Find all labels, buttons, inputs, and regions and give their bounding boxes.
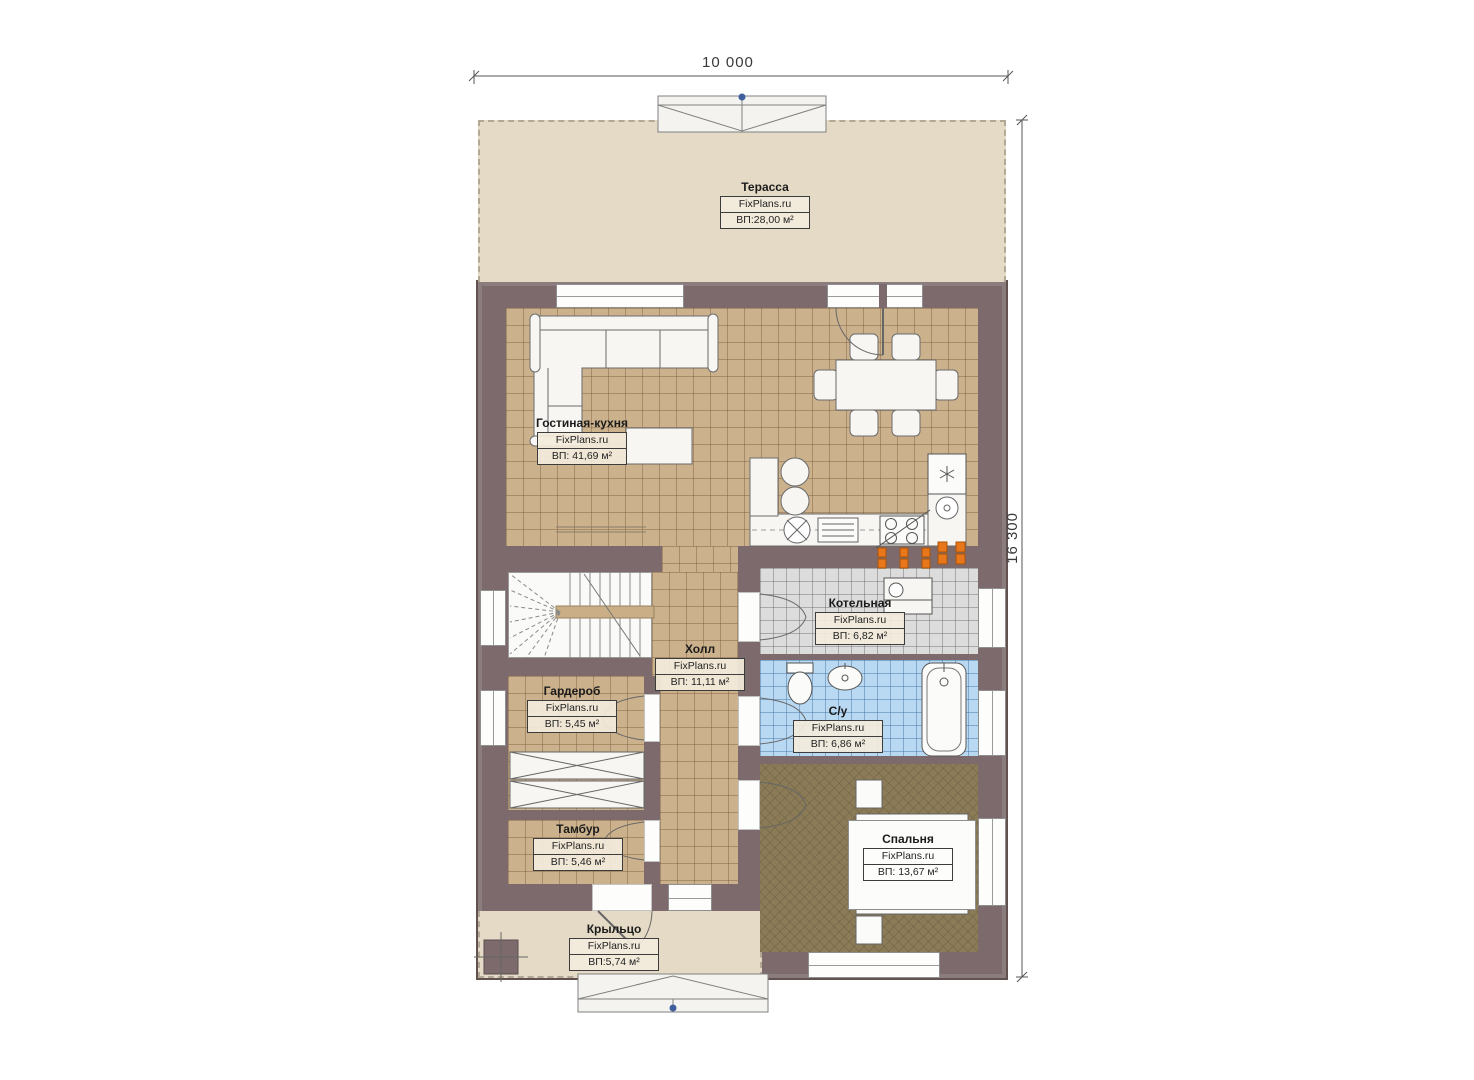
- room-name: Котельная: [829, 596, 892, 610]
- room-label-porch: Крыльцо FixPlans.ru ВП:5,74 м²: [562, 922, 666, 971]
- roof-window-bottom-icon: [578, 974, 768, 1012]
- room-label-bathroom: С/у FixPlans.ru ВП: 6,86 м²: [790, 704, 886, 753]
- brand-watermark: FixPlans.ru: [528, 701, 616, 717]
- bathroom-door-opening: [738, 696, 760, 746]
- room-info-box: FixPlans.ru ВП: 5,45 м²: [527, 700, 617, 733]
- window-left-wardrobe: [480, 690, 506, 746]
- room-area: ВП: 13,67 м²: [864, 865, 952, 880]
- brand-watermark: FixPlans.ru: [538, 433, 626, 449]
- room-area: ВП:5,74 м²: [570, 955, 658, 970]
- room-info-box: FixPlans.ru ВП: 13,67 м²: [863, 848, 953, 881]
- room-name: Терасса: [741, 180, 789, 194]
- brand-watermark: FixPlans.ru: [864, 849, 952, 865]
- window-left-stairs: [480, 590, 506, 646]
- room-info-box: FixPlans.ru ВП:5,74 м²: [569, 938, 659, 971]
- room-info-box: FixPlans.ru ВП:28,00 м²: [720, 196, 810, 229]
- room-label-vestibule: Тамбур FixPlans.ru ВП: 5,46 м²: [528, 822, 628, 871]
- room-area: ВП: 6,82 м²: [816, 629, 904, 644]
- dimension-height-label: 16 300: [1004, 512, 1021, 564]
- window-right-bedroom: [978, 818, 1006, 906]
- boiler-door-opening: [738, 592, 760, 642]
- front-door-opening: [592, 884, 652, 911]
- brand-watermark: FixPlans.ru: [816, 613, 904, 629]
- floor-hall-lower: [660, 676, 738, 884]
- window-right-bathroom: [978, 690, 1006, 756]
- room-area: ВП: 6,86 м²: [794, 737, 882, 752]
- room-info-box: FixPlans.ru ВП: 6,82 м²: [815, 612, 905, 645]
- front-window: [668, 884, 712, 911]
- room-name: Тамбур: [556, 822, 600, 836]
- room-name: Спальня: [882, 832, 934, 846]
- vestibule-door-opening: [644, 820, 660, 862]
- room-name: Крыльцо: [587, 922, 642, 936]
- room-name: Гардероб: [544, 684, 601, 698]
- dimension-top-line: [469, 70, 1013, 84]
- brand-watermark: FixPlans.ru: [794, 721, 882, 737]
- staircase-area: [508, 572, 652, 658]
- room-area: ВП: 5,46 м²: [534, 855, 622, 870]
- window-right-boiler: [978, 588, 1006, 648]
- room-info-box: FixPlans.ru ВП: 41,69 м²: [537, 432, 627, 465]
- room-info-box: FixPlans.ru ВП: 6,86 м²: [793, 720, 883, 753]
- room-label-bedroom: Спальня FixPlans.ru ВП: 13,67 м²: [856, 832, 960, 881]
- room-label-living-kitchen: Гостиная-кухня FixPlans.ru ВП: 41,69 м²: [530, 416, 634, 465]
- floor-plan-canvas: 10 000 16 300: [0, 0, 1474, 1080]
- room-name: Гостиная-кухня: [536, 416, 628, 430]
- room-info-box: FixPlans.ru ВП: 11,11 м²: [655, 658, 745, 691]
- room-area: ВП: 5,45 м²: [528, 717, 616, 732]
- window-top: [556, 284, 684, 308]
- room-label-wardrobe: Гардероб FixPlans.ru ВП: 5,45 м²: [522, 684, 622, 733]
- wardrobe-door-opening: [644, 694, 660, 742]
- room-label-boiler: Котельная FixPlans.ru ВП: 6,82 м²: [808, 596, 912, 645]
- brand-watermark: FixPlans.ru: [721, 197, 809, 213]
- room-area: ВП: 11,11 м²: [656, 675, 744, 690]
- terrace-door-post: [879, 284, 887, 308]
- room-label-hall: Холл FixPlans.ru ВП: 11,11 м²: [652, 642, 748, 691]
- opening-living-hall: [662, 546, 738, 572]
- window-bottom-bedroom: [808, 952, 940, 978]
- room-name: Холл: [685, 642, 715, 656]
- brand-watermark: FixPlans.ru: [534, 839, 622, 855]
- bedroom-door-opening: [738, 780, 760, 830]
- room-name: С/у: [829, 704, 848, 718]
- terrace-door-opening: [827, 284, 923, 308]
- room-area: ВП:28,00 м²: [721, 213, 809, 228]
- brand-watermark: FixPlans.ru: [570, 939, 658, 955]
- room-label-terrace: Терасса FixPlans.ru ВП:28,00 м²: [712, 180, 818, 229]
- dimension-width-label: 10 000: [702, 54, 754, 71]
- room-area: ВП: 41,69 м²: [538, 449, 626, 464]
- brand-watermark: FixPlans.ru: [656, 659, 744, 675]
- room-info-box: FixPlans.ru ВП: 5,46 м²: [533, 838, 623, 871]
